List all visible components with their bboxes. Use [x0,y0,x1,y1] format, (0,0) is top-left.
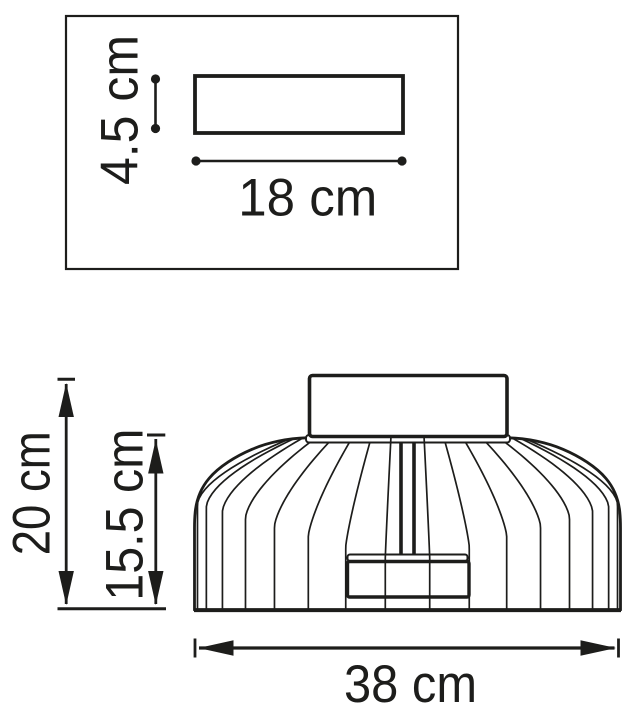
svg-text:4.5 cm: 4.5 cm [91,35,150,185]
svg-text:15.5 cm: 15.5 cm [96,429,155,601]
svg-text:38 cm: 38 cm [344,655,477,714]
svg-text:20 cm: 20 cm [2,431,61,555]
svg-text:18 cm: 18 cm [238,169,377,228]
